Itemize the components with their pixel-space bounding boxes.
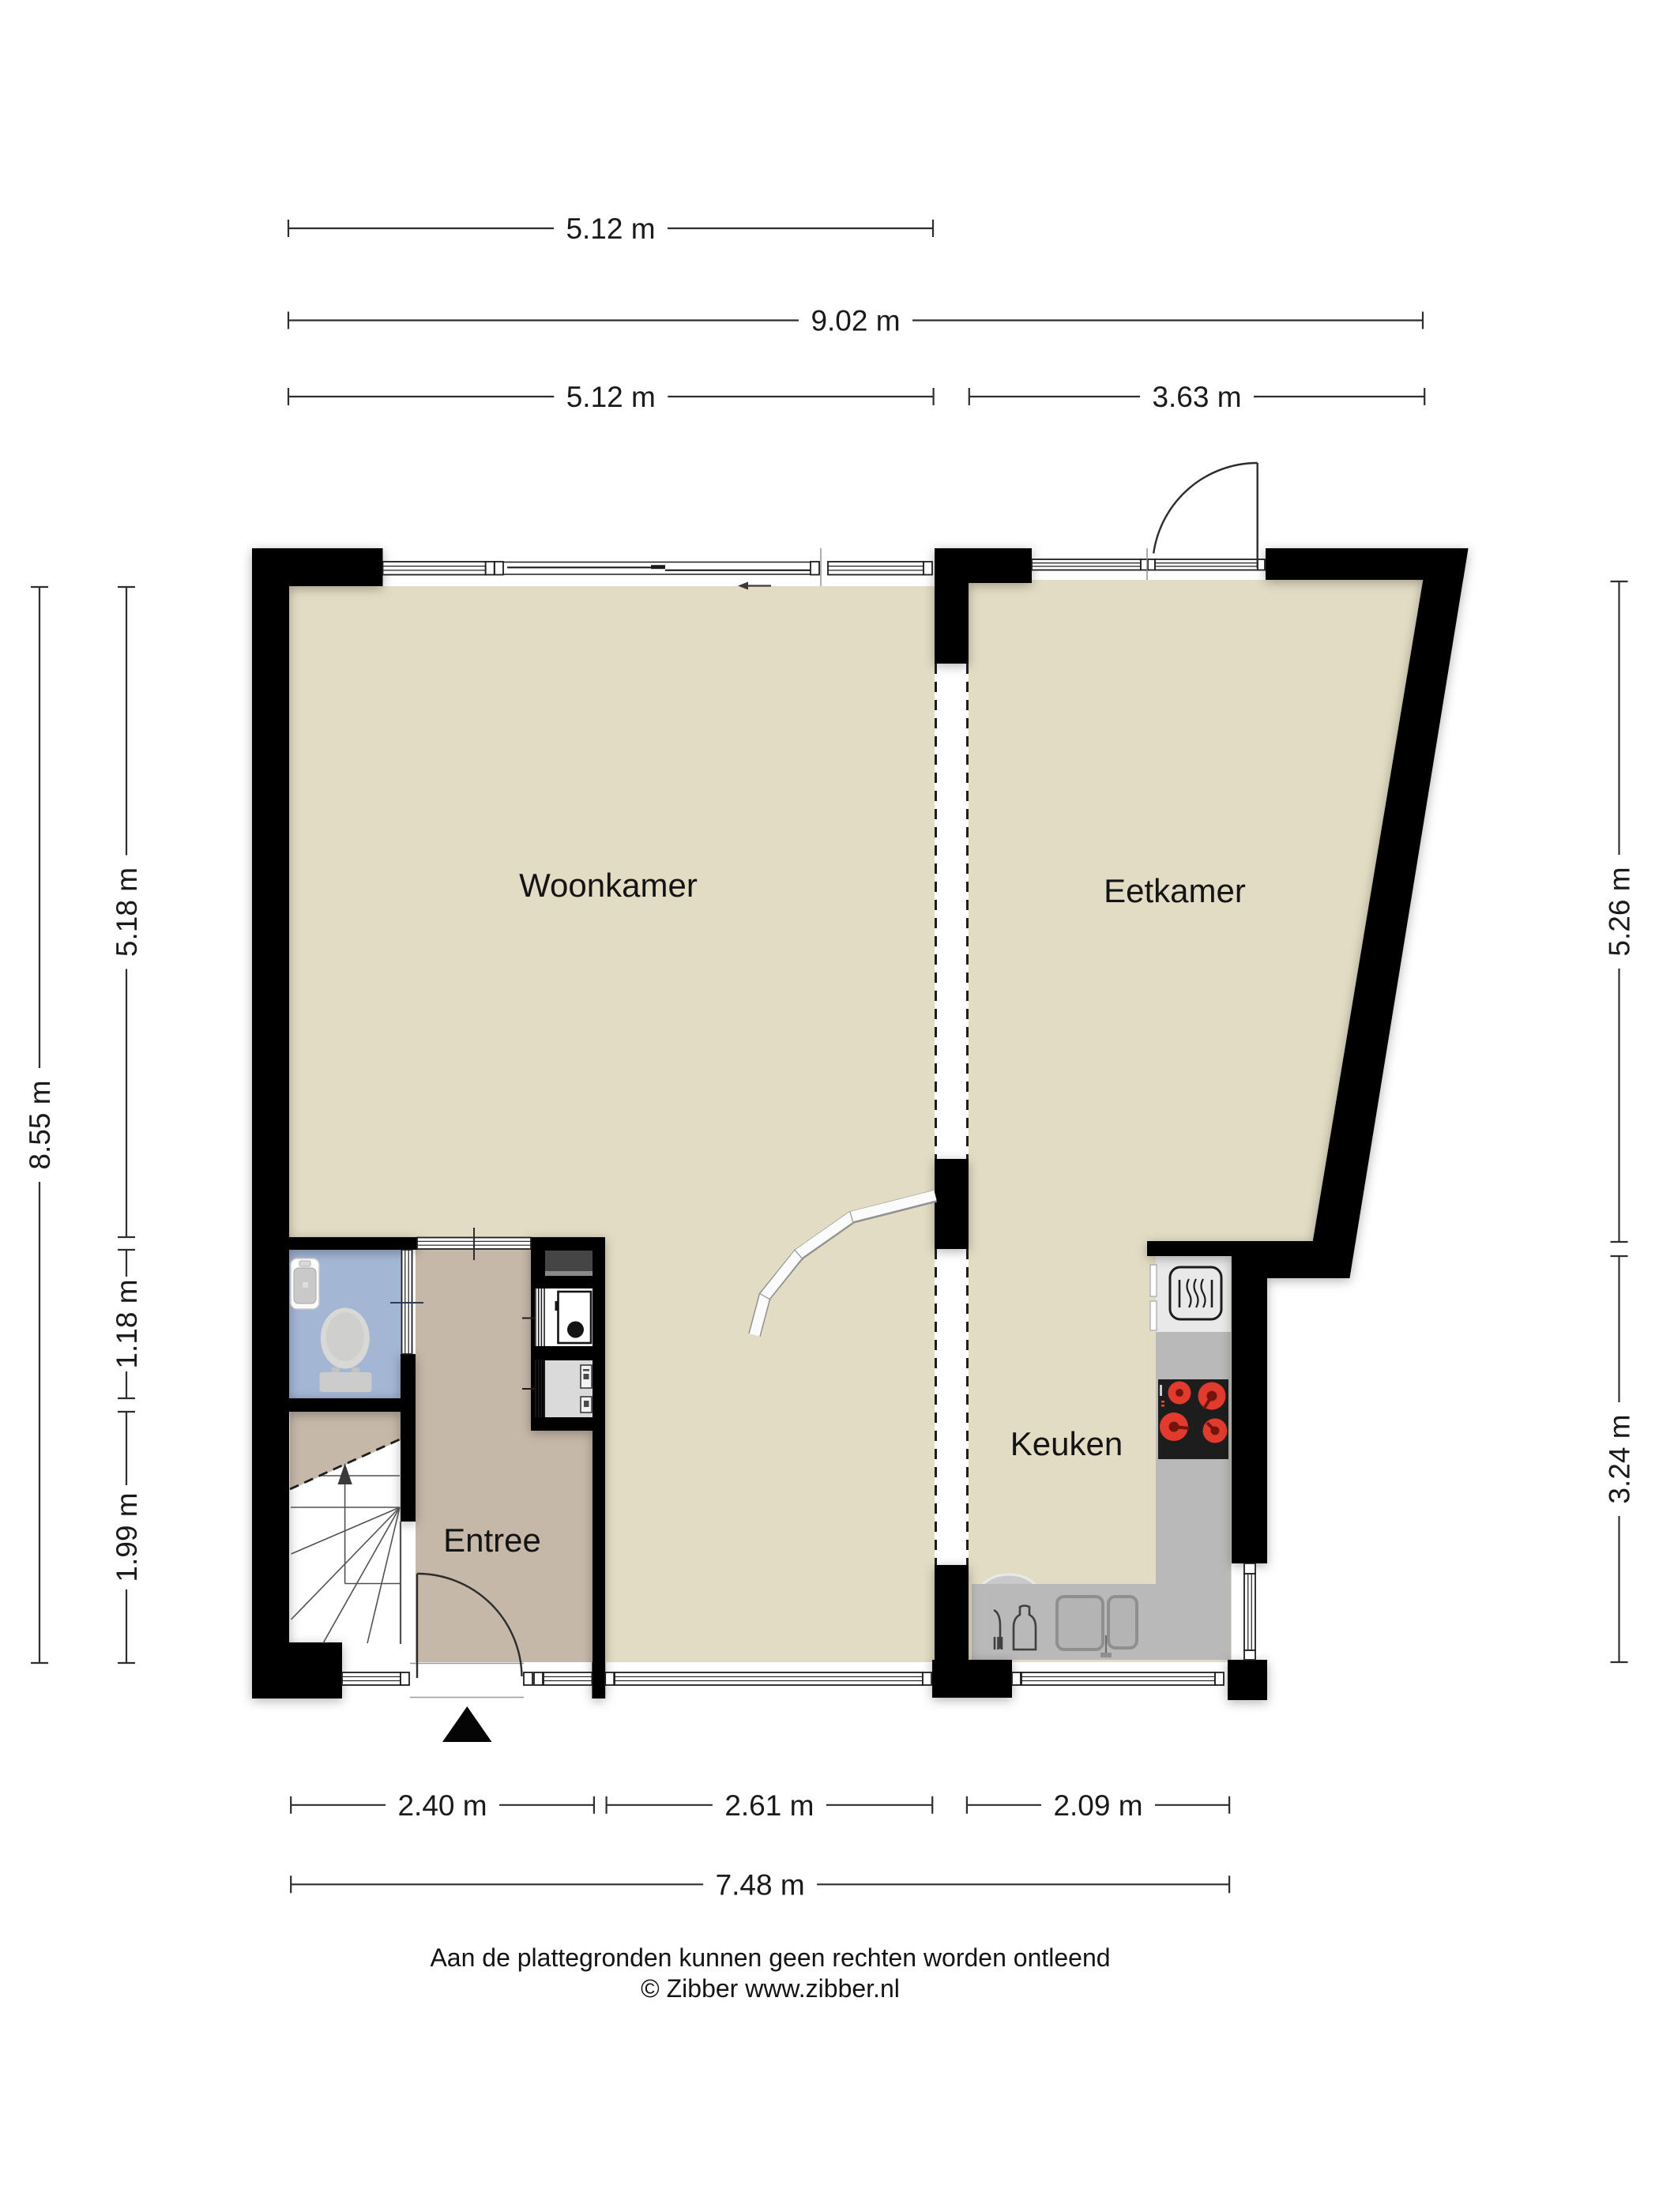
svg-text:Woonkamer: Woonkamer <box>519 867 698 904</box>
svg-text:8.55 m: 8.55 m <box>24 1080 56 1169</box>
svg-text:9.02 m: 9.02 m <box>811 305 900 337</box>
svg-text:Keuken: Keuken <box>1010 1425 1123 1462</box>
svg-text:Aan de plattegronden kunnen ge: Aan de plattegronden kunnen geen rechten… <box>430 1943 1110 1972</box>
svg-text:3.63 m: 3.63 m <box>1152 381 1241 413</box>
svg-text:© Zibber www.zibber.nl: © Zibber www.zibber.nl <box>641 1974 900 2003</box>
svg-text:2.09 m: 2.09 m <box>1053 1789 1142 1822</box>
svg-text:5.26 m: 5.26 m <box>1604 867 1636 956</box>
svg-text:5.12 m: 5.12 m <box>566 381 656 413</box>
svg-text:5.12 m: 5.12 m <box>566 213 655 245</box>
svg-text:1.18 m: 1.18 m <box>111 1279 143 1368</box>
svg-text:7.48 m: 7.48 m <box>716 1868 805 1901</box>
svg-text:1.99 m: 1.99 m <box>111 1492 143 1582</box>
svg-text:Eetkamer: Eetkamer <box>1104 872 1246 909</box>
svg-text:Entree: Entree <box>443 1522 541 1559</box>
svg-text:3.24 m: 3.24 m <box>1604 1414 1636 1503</box>
svg-text:5.18 m: 5.18 m <box>111 867 143 957</box>
svg-text:2.40 m: 2.40 m <box>397 1789 487 1822</box>
svg-text:2.61 m: 2.61 m <box>724 1789 814 1822</box>
